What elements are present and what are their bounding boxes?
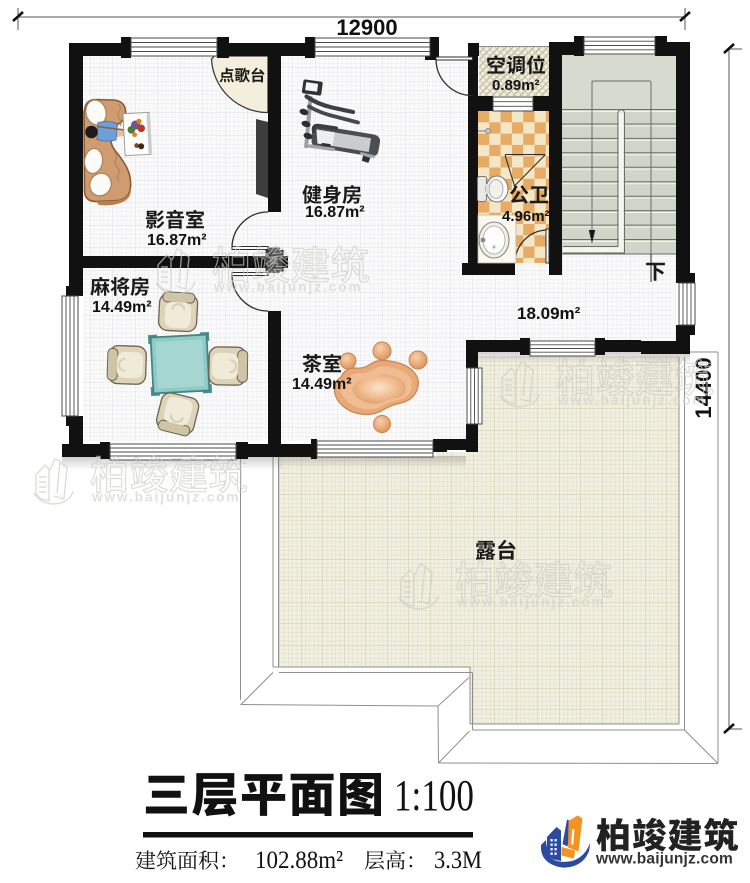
svg-text:1:100: 1:100 [394,771,474,820]
svg-text:3.3M: 3.3M [434,847,482,874]
svg-text:www.baijunjz.com: www.baijunjz.com [456,595,606,610]
svg-text:4.96m²: 4.96m² [502,208,550,225]
svg-text:14.49m²: 14.49m² [92,299,152,316]
svg-text:www.baijunjz.com: www.baijunjz.com [595,851,733,868]
svg-text:www.baijunjz.com: www.baijunjz.com [91,490,241,505]
svg-text:18.09m²: 18.09m² [517,304,581,323]
svg-text:www.baijunjz.com: www.baijunjz.com [213,280,363,295]
svg-text:14.49m²: 14.49m² [292,376,352,393]
svg-text:www.baijunjz.com: www.baijunjz.com [557,393,707,408]
svg-text:16.87m²: 16.87m² [305,204,365,221]
svg-text:102.88m²: 102.88m² [255,847,343,874]
svg-text:12900: 12900 [336,15,397,40]
svg-text:0.89m²: 0.89m² [492,77,540,94]
svg-text:16.87m²: 16.87m² [147,232,207,249]
